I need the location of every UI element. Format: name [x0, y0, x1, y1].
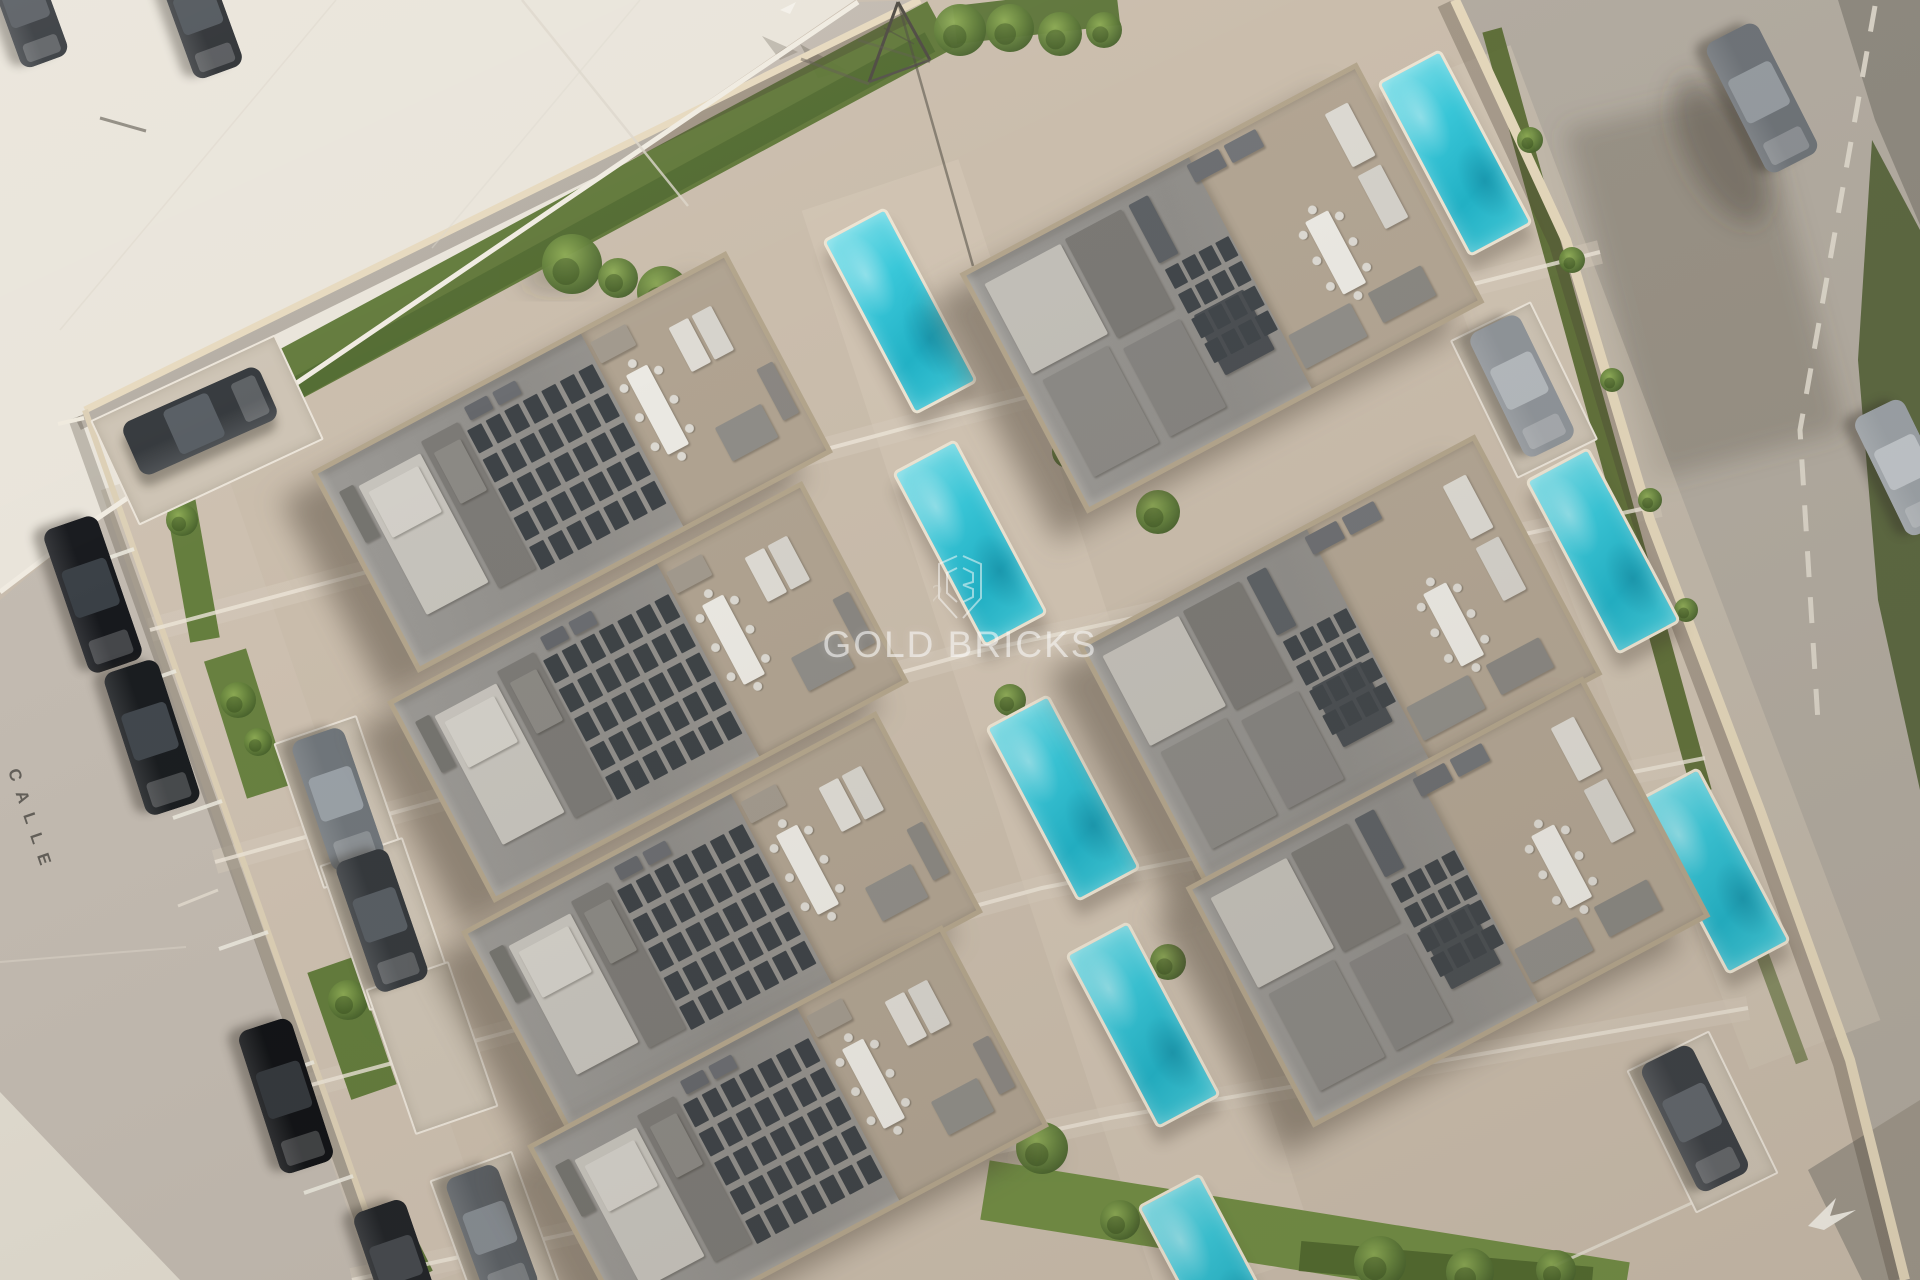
car-glass — [1873, 432, 1920, 491]
car-shine — [230, 374, 270, 423]
car-glass — [307, 764, 364, 822]
swimming-pool — [1137, 1173, 1294, 1280]
parked-car — [41, 513, 144, 675]
aerial-site-render: CALLE GOLD BRICKS — [0, 0, 1920, 1280]
roof-equipment — [642, 840, 672, 865]
car-glass — [61, 556, 122, 619]
parked-car — [102, 657, 203, 817]
parked-car — [1703, 20, 1821, 176]
car-glass — [1727, 60, 1791, 125]
car-shine — [1903, 492, 1920, 530]
roof-equipment — [708, 1054, 738, 1079]
car-glass — [461, 1199, 518, 1255]
car-shine — [1762, 125, 1810, 166]
car-shine — [486, 1261, 531, 1280]
roof-equipment — [540, 625, 570, 650]
swimming-pool — [892, 439, 1049, 648]
roof-equipment — [614, 855, 644, 880]
swimming-pool — [1065, 921, 1222, 1130]
car-glass — [254, 1059, 313, 1120]
car-shine — [280, 1130, 326, 1167]
car-glass — [171, 0, 225, 37]
car-shine — [22, 33, 62, 63]
car-glass — [120, 700, 180, 762]
car-glass — [351, 885, 408, 943]
parked-car — [155, 0, 245, 81]
car-shine — [376, 950, 421, 985]
roof-equipment — [568, 610, 598, 635]
parked-car — [1851, 396, 1920, 539]
car-shine — [145, 771, 192, 808]
swimming-pool — [822, 207, 979, 416]
scene-objects — [0, 0, 1920, 1280]
car-glass — [1, 0, 52, 29]
roof-equipment — [492, 380, 522, 405]
swimming-pool — [985, 694, 1142, 903]
car-shine — [194, 41, 236, 73]
roof-equipment — [680, 1069, 710, 1094]
parked-car — [351, 1197, 445, 1280]
parked-car — [0, 0, 70, 70]
roof-equipment — [464, 395, 494, 420]
parked-car — [236, 1016, 336, 1176]
car-shine — [87, 628, 134, 666]
car-glass — [368, 1233, 424, 1280]
